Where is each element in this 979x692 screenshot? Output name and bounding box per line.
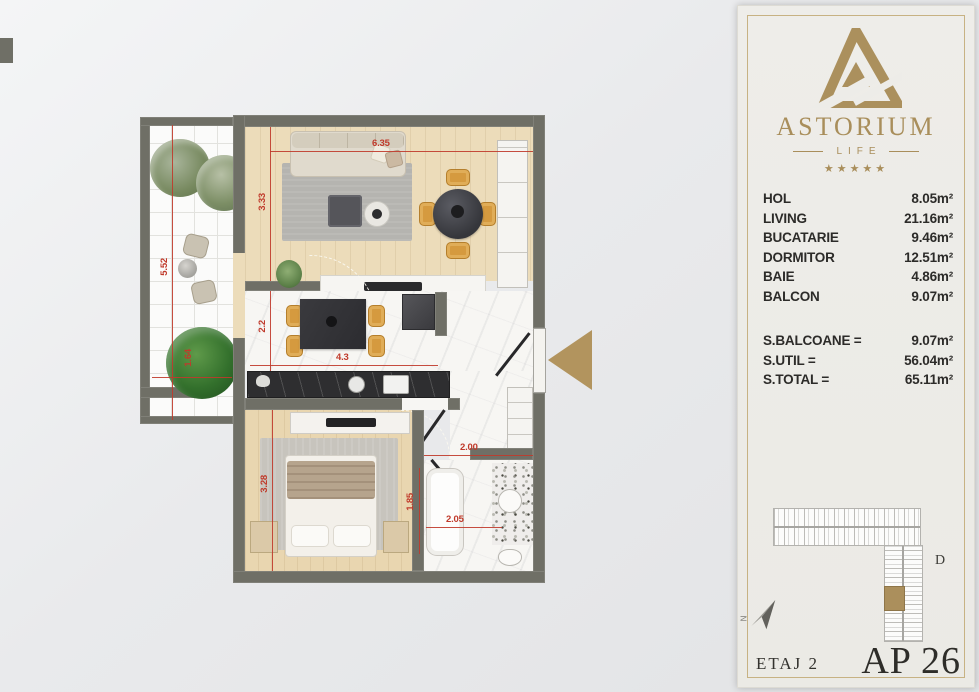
total-label: S.TOTAL = <box>763 370 829 390</box>
dim-line <box>172 125 173 420</box>
kitchen-sink-icon <box>348 376 365 393</box>
total-value: 56.04m² <box>904 351 953 371</box>
balcony-wall-left <box>140 117 150 424</box>
room-label: BAIE <box>763 267 794 287</box>
balcony-wall-top <box>140 117 233 126</box>
table-row: HOL8.05m² <box>763 189 953 209</box>
dim-label: 1.85 <box>406 493 416 511</box>
entrance-arrow-icon <box>548 330 592 390</box>
astorium-logo-icon <box>810 28 902 108</box>
nightstand-icon <box>383 521 409 553</box>
kitchen-chair-icon <box>368 305 385 327</box>
kitchen-item <box>256 375 270 387</box>
table-row: BAIE4.86m² <box>763 267 953 287</box>
info-panel: ASTORIUM LIFE ★★★★★ HOL8.05m² LIVING21.1… <box>737 5 975 688</box>
brand-tagline-row: LIFE <box>738 146 974 157</box>
north-arrow-dark <box>744 598 778 632</box>
entrance-recess <box>533 328 546 393</box>
building-label: D <box>935 553 945 569</box>
brand-tagline: LIFE <box>830 146 881 157</box>
wall-bedroom-bathroom <box>412 410 424 571</box>
balcony-table-icon <box>178 259 197 278</box>
room-value: 21.16m² <box>904 209 953 229</box>
table-row: S.BALCOANE =9.07m² <box>763 331 953 351</box>
wall-right-lower <box>533 393 545 583</box>
highlighted-apartment <box>884 586 905 611</box>
dim-label: 2.2 <box>258 320 268 333</box>
dining-chair-icon <box>446 169 470 186</box>
brochure-page: { "colors": {"accent_gold": "#ab905d", "… <box>0 0 979 692</box>
room-label: HOL <box>763 189 791 209</box>
dim-line <box>424 455 533 456</box>
north-letter: N <box>738 616 747 622</box>
room-areas-table: HOL8.05m² LIVING21.16m² BUCATARIE9.46m² … <box>763 189 953 306</box>
total-value: 65.11m² <box>905 370 953 390</box>
dim-label: 1.64 <box>184 349 194 367</box>
living-cabinet <box>497 140 528 288</box>
bathroom-sink-icon <box>498 489 522 513</box>
fridge-icon <box>402 294 435 330</box>
hall-wardrobe <box>507 387 533 451</box>
total-label: S.UTIL = <box>763 351 816 371</box>
cooktop-icon <box>383 375 409 394</box>
dim-label: 6.35 <box>372 139 390 149</box>
dim-label: 3.28 <box>260 475 270 493</box>
floor-plan: 6.35 3.33 2.2 4.3 3.28 5.52 1.64 2.00 1.… <box>140 113 552 583</box>
dim-label: 2.00 <box>460 443 478 453</box>
kitchen-table-decor <box>326 316 337 327</box>
room-value: 9.46m² <box>911 228 953 248</box>
apartment-number: AP 26 <box>861 639 961 683</box>
dim-label: 5.52 <box>160 258 170 276</box>
tagline-line <box>889 151 919 152</box>
large-plant-icon <box>166 327 238 399</box>
bathtub-icon <box>426 468 464 556</box>
total-label: S.BALCOANE = <box>763 331 862 351</box>
room-value: 8.05m² <box>911 189 953 209</box>
dim-line <box>270 151 533 152</box>
tv-icon <box>326 418 376 427</box>
dim-label: 2.05 <box>446 515 464 525</box>
dim-line <box>270 127 271 281</box>
dim-line <box>426 527 502 528</box>
totals-table: S.BALCOANE =9.07m² S.UTIL =56.04m² S.TOT… <box>763 331 953 390</box>
wall-bottom <box>233 571 545 583</box>
five-stars-icon: ★★★★★ <box>738 162 974 175</box>
balcony-wall-bottom <box>140 416 233 424</box>
wall-bathroom-top <box>470 448 533 460</box>
kitchen-chair-icon <box>368 335 385 357</box>
dim-line <box>272 410 273 571</box>
wall-top <box>233 115 545 127</box>
laptop-icon <box>364 282 422 291</box>
bedroom-door-opening <box>402 398 448 410</box>
dim-line <box>152 377 232 378</box>
bed-pillow <box>333 525 371 547</box>
table-centerpiece <box>451 205 464 218</box>
wall-right-upper <box>533 115 545 328</box>
floor-label: ETAJ 2 <box>756 654 819 674</box>
room-label: BALCON <box>763 287 820 307</box>
brand-name: ASTORIUM <box>738 112 974 142</box>
table-row: LIVING21.16m² <box>763 209 953 229</box>
toilet-icon <box>498 549 522 566</box>
side-table-decor <box>372 209 382 219</box>
dim-label: 4.3 <box>336 353 349 363</box>
table-row: S.UTIL =56.04m² <box>763 351 953 371</box>
dim-line <box>270 291 271 371</box>
room-label: LIVING <box>763 209 807 229</box>
kitchen-area <box>245 291 533 371</box>
wall-left <box>233 115 245 583</box>
balcony-door-opening <box>233 253 245 338</box>
tagline-line <box>793 151 823 152</box>
wall-fragment <box>0 38 13 63</box>
console-plant-icon <box>276 260 302 288</box>
room-value: 9.07m² <box>911 287 953 307</box>
table-row: DORMITOR12.51m² <box>763 248 953 268</box>
room-value: 12.51m² <box>904 248 953 268</box>
nightstand-icon <box>250 521 278 553</box>
dim-line <box>419 468 420 554</box>
total-value: 9.07m² <box>911 331 953 351</box>
keyplan-horizontal-wing <box>773 508 921 546</box>
wall-fridge-nook <box>435 292 447 336</box>
table-row: BUCATARIE9.46m² <box>763 228 953 248</box>
dim-line <box>250 365 438 366</box>
table-row: BALCON9.07m² <box>763 287 953 307</box>
room-label: DORMITOR <box>763 248 835 268</box>
north-arrow-icon: N <box>744 598 778 632</box>
table-row: S.TOTAL =65.11m² <box>763 370 953 390</box>
dining-chair-icon <box>446 242 470 259</box>
room-value: 4.86m² <box>911 267 953 287</box>
room-label: BUCATARIE <box>763 228 839 248</box>
bed-blanket <box>287 461 375 499</box>
bed-pillow <box>291 525 329 547</box>
dim-label: 3.33 <box>258 193 268 211</box>
coffee-table-icon <box>328 195 362 227</box>
